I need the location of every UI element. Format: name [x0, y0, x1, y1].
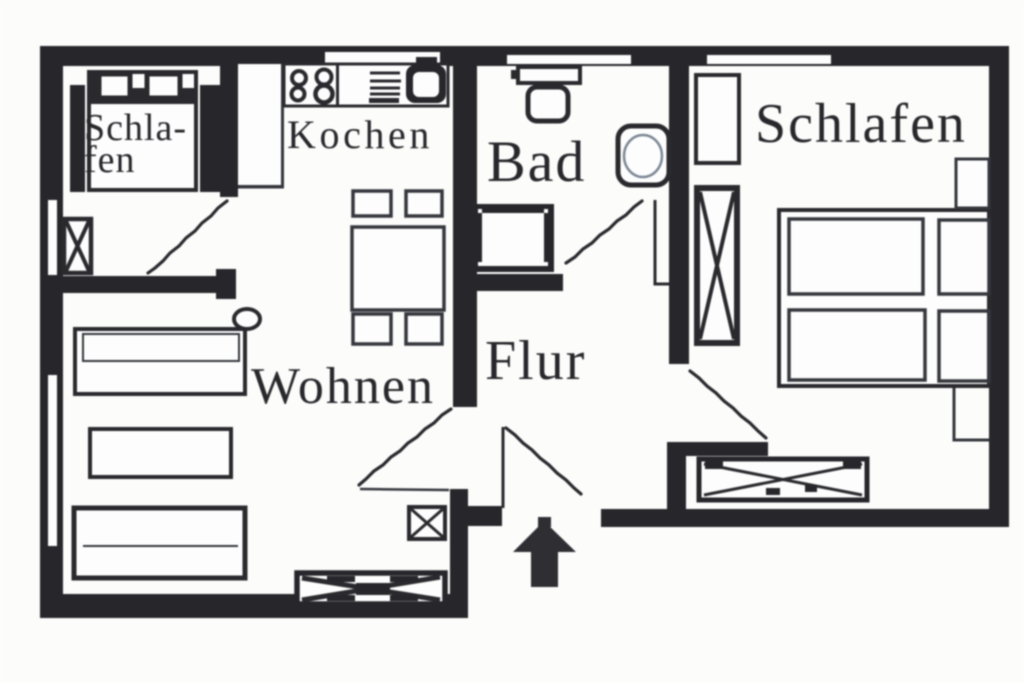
- svg-text:Wohnen: Wohnen: [251, 358, 435, 415]
- svg-text:Flur: Flur: [485, 330, 586, 392]
- svg-text:Schlafen: Schlafen: [755, 93, 967, 155]
- svg-text:Bad: Bad: [487, 129, 586, 194]
- svg-text:Kochen: Kochen: [287, 112, 433, 157]
- svg-text:fen: fen: [84, 139, 136, 181]
